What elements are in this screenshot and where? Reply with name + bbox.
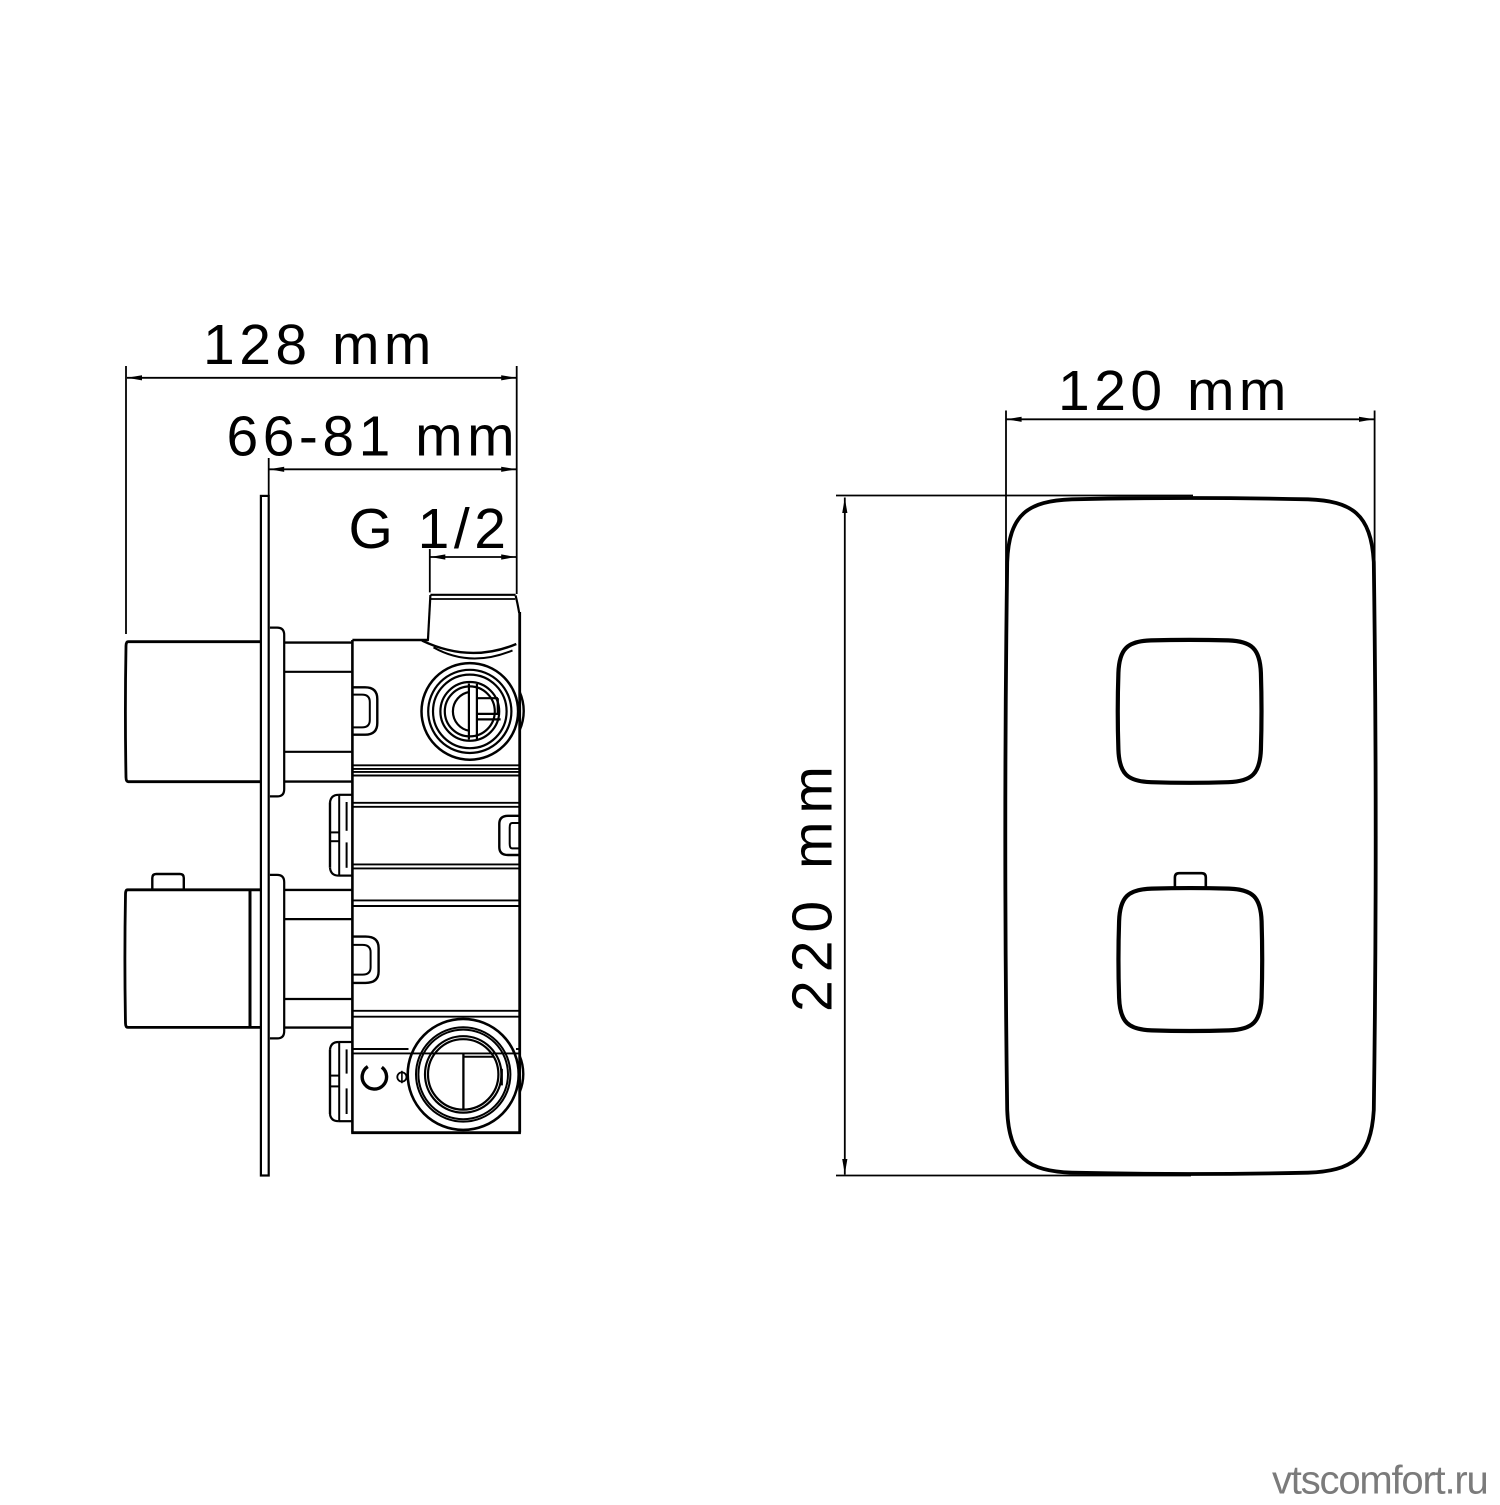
svg-text:vtscomfort.ru: vtscomfort.ru	[1272, 1459, 1488, 1501]
svg-text:128 mm: 128 mm	[203, 313, 436, 377]
svg-text:120 mm: 120 mm	[1058, 359, 1291, 423]
svg-text:220 mm: 220 mm	[781, 758, 845, 1012]
svg-text:66-81 mm: 66-81 mm	[227, 405, 520, 469]
